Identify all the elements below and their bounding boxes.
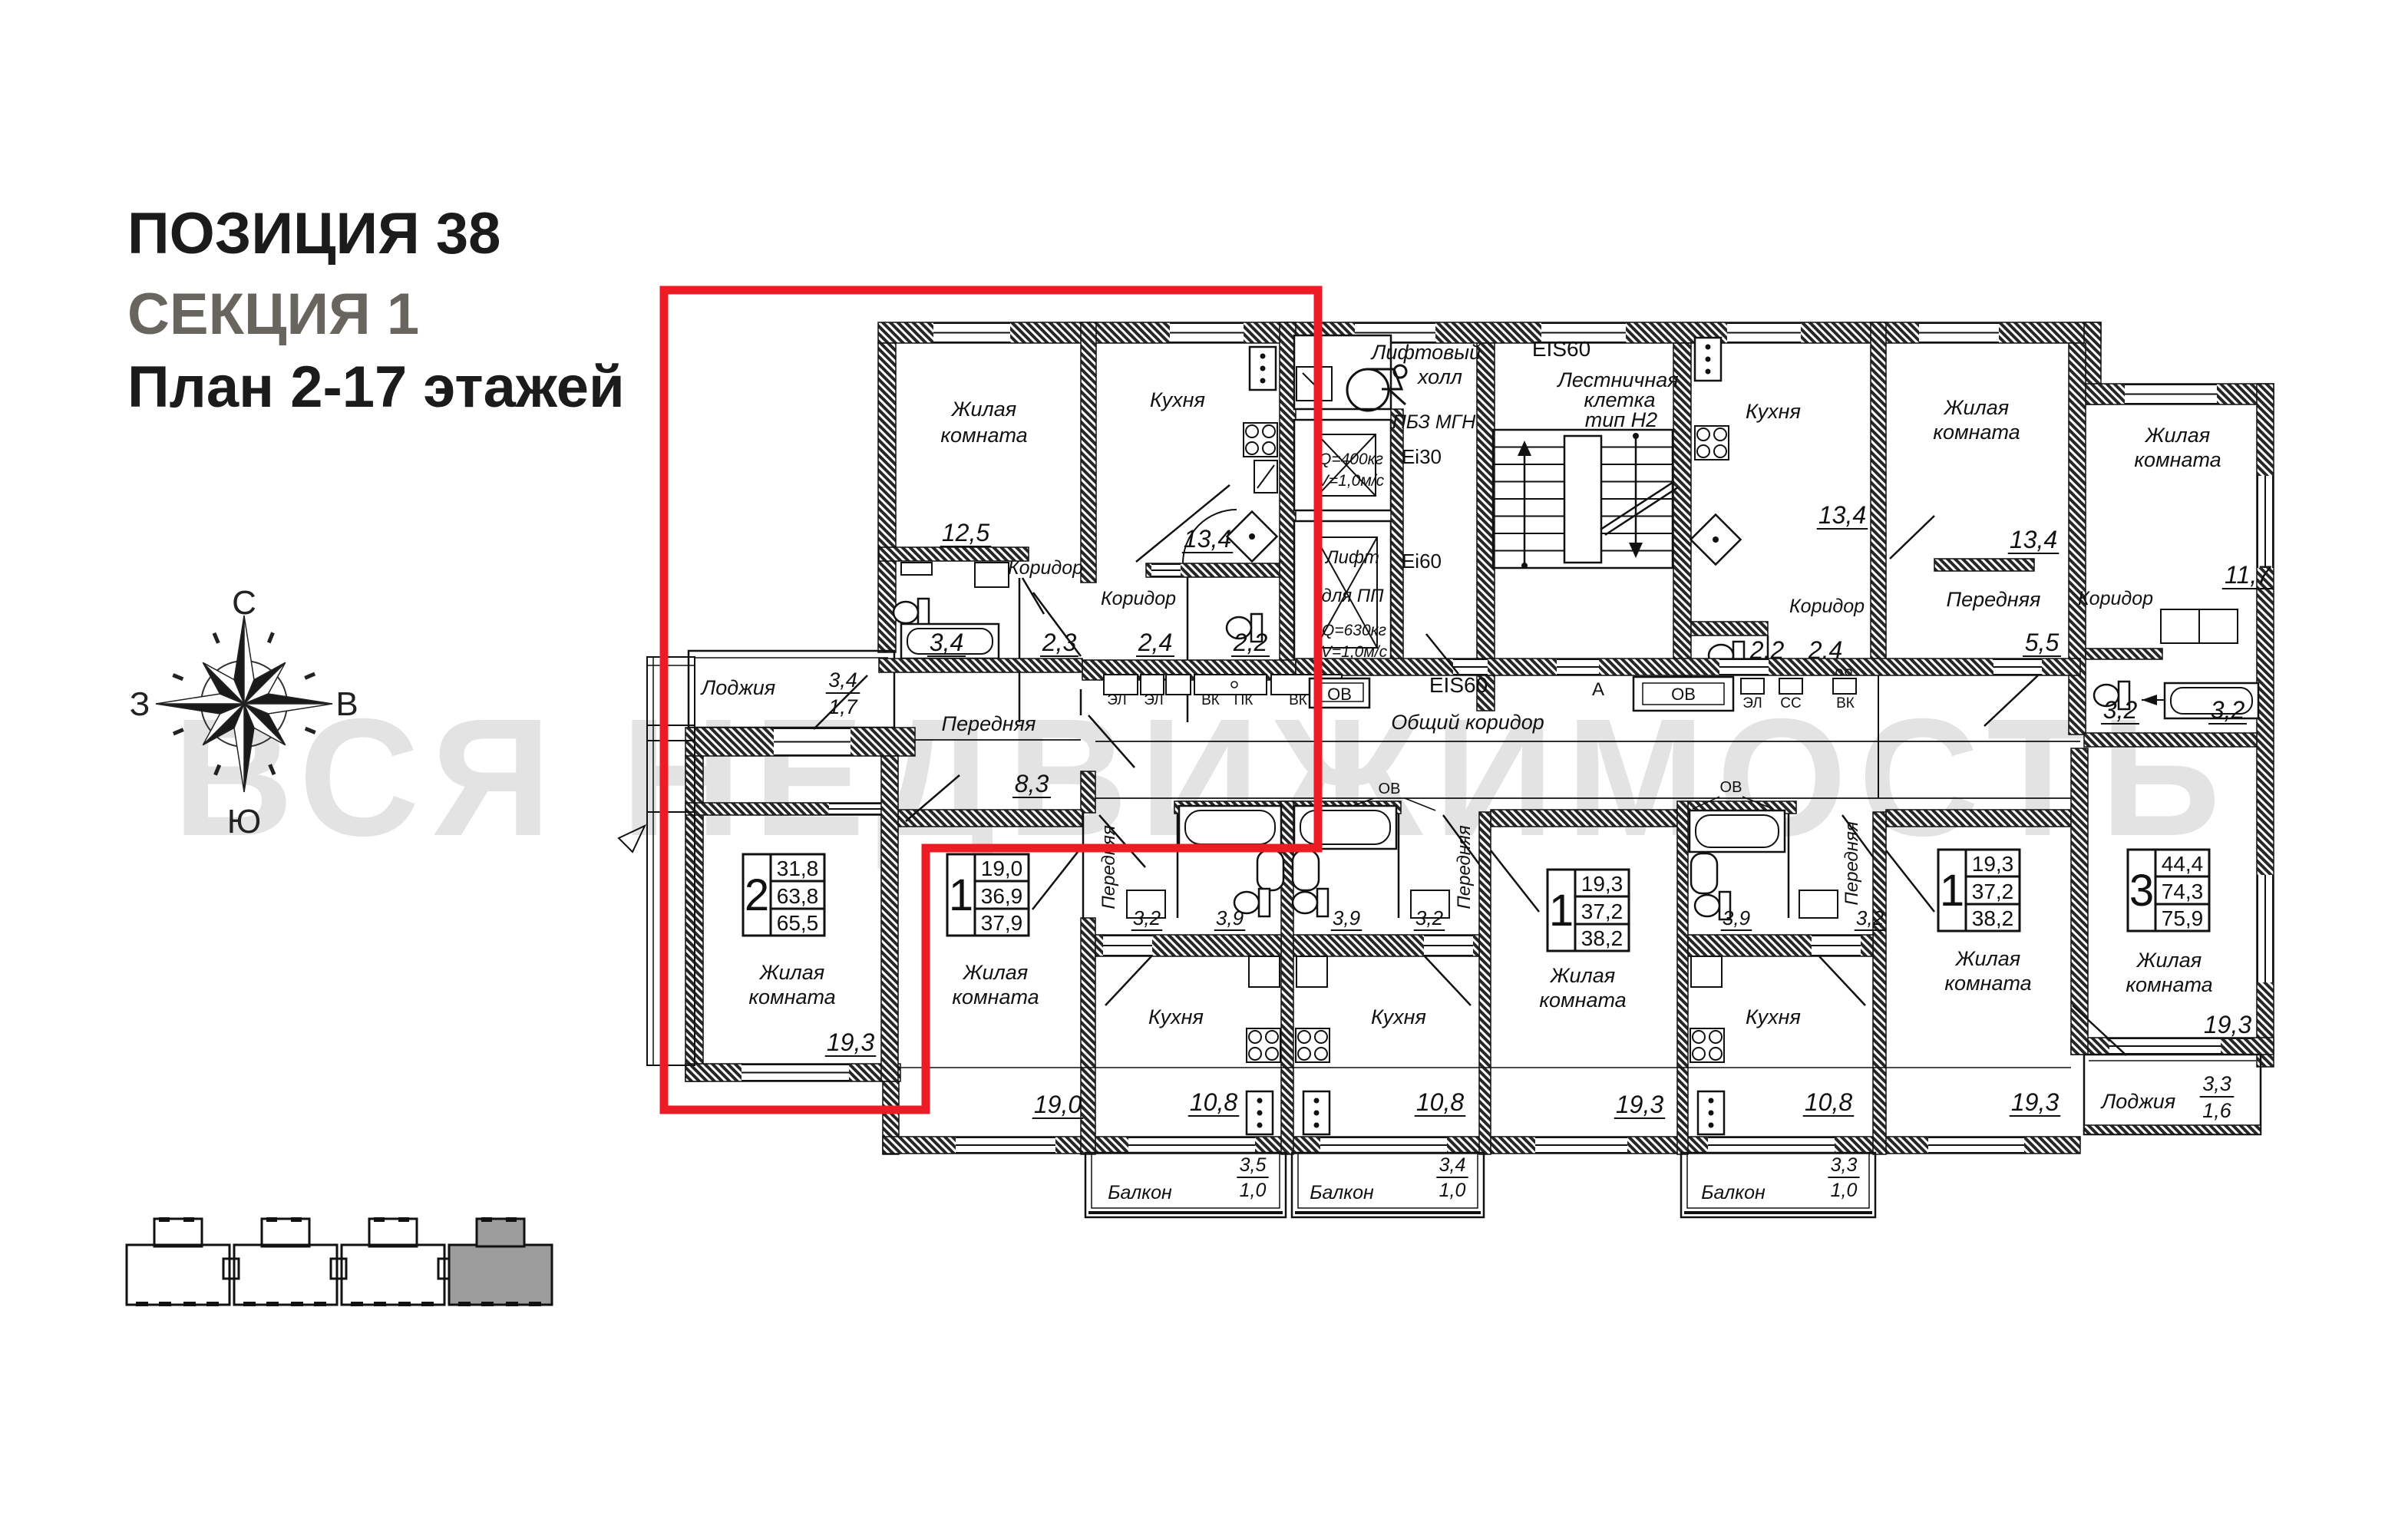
svg-text:11,7: 11,7 <box>2225 561 2271 589</box>
svg-text:Балкон: Балкон <box>1310 1182 1374 1203</box>
svg-text:10,8: 10,8 <box>1416 1088 1464 1116</box>
svg-text:37,2: 37,2 <box>1972 880 2014 903</box>
svg-text:V=1,0м/с: V=1,0м/с <box>1318 472 1385 490</box>
svg-text:Ю: Ю <box>227 803 261 840</box>
svg-text:3,2: 3,2 <box>1133 906 1161 929</box>
svg-text:19,3: 19,3 <box>827 1028 874 1056</box>
svg-text:3,2: 3,2 <box>1856 906 1884 929</box>
svg-text:Жилая: Жилая <box>1549 964 1615 987</box>
svg-text:Кухня: Кухня <box>1371 1005 1426 1028</box>
svg-text:31,8: 31,8 <box>777 857 819 880</box>
svg-text:19,3: 19,3 <box>1972 852 2014 876</box>
svg-text:СС: СС <box>1780 695 1801 711</box>
svg-text:З: З <box>130 685 150 723</box>
svg-text:Коридор: Коридор <box>1789 596 1865 617</box>
svg-text:ПК: ПК <box>1234 692 1254 708</box>
svg-text:1,0: 1,0 <box>1240 1180 1267 1201</box>
svg-text:ОВ: ОВ <box>1379 781 1401 797</box>
svg-text:Балкон: Балкон <box>1108 1182 1172 1203</box>
svg-text:10,8: 10,8 <box>1805 1088 1852 1116</box>
svg-text:ЭЛ: ЭЛ <box>1107 692 1127 708</box>
svg-text:СЕКЦИЯ 1: СЕКЦИЯ 1 <box>127 282 419 347</box>
svg-text:19,3: 19,3 <box>1616 1091 1663 1118</box>
svg-text:Жилая: Жилая <box>2144 424 2210 447</box>
svg-text:Коридор: Коридор <box>1008 557 1083 579</box>
svg-text:Жилая: Жилая <box>962 961 1028 984</box>
svg-text:75,9: 75,9 <box>2162 906 2204 930</box>
svg-text:1,0: 1,0 <box>1831 1180 1858 1201</box>
svg-text:37,9: 37,9 <box>981 911 1023 935</box>
svg-text:ОВ: ОВ <box>1671 685 1696 704</box>
svg-text:36,9: 36,9 <box>981 884 1023 908</box>
svg-text:Q=400кг: Q=400кг <box>1319 451 1383 468</box>
svg-text:3,5: 3,5 <box>1240 1154 1267 1176</box>
svg-text:63,8: 63,8 <box>777 884 819 908</box>
svg-text:1: 1 <box>1940 866 1964 916</box>
svg-text:Жилая: Жилая <box>2135 949 2202 972</box>
svg-text:Жилая: Жилая <box>1943 396 2009 419</box>
svg-text:38,2: 38,2 <box>1972 906 2014 930</box>
svg-text:1,0: 1,0 <box>1439 1180 1466 1201</box>
svg-text:19,3: 19,3 <box>2011 1088 2059 1116</box>
svg-text:ЭЛ: ЭЛ <box>1144 692 1164 708</box>
svg-text:комната: комната <box>748 985 835 1008</box>
svg-text:ВК: ВК <box>1201 692 1220 708</box>
svg-text:19,0: 19,0 <box>1034 1091 1082 1118</box>
svg-text:EIS60: EIS60 <box>1532 337 1590 361</box>
svg-text:комната: комната <box>1944 972 2031 995</box>
svg-text:3,2: 3,2 <box>1415 906 1444 929</box>
svg-text:Общий коридор: Общий коридор <box>1391 711 1544 734</box>
svg-text:Кухня: Кухня <box>1746 400 1801 423</box>
svg-text:Передняя: Передняя <box>1842 821 1862 905</box>
svg-text:3,4: 3,4 <box>828 668 857 692</box>
svg-text:ЭЛ: ЭЛ <box>1742 695 1762 711</box>
svg-text:тип Н2: тип Н2 <box>1585 408 1657 431</box>
svg-text:10,8: 10,8 <box>1190 1088 1237 1116</box>
svg-text:19,3: 19,3 <box>2204 1011 2251 1038</box>
svg-text:А: А <box>1592 679 1604 700</box>
svg-text:ОВ: ОВ <box>1327 685 1352 704</box>
svg-text:Балкон: Балкон <box>1701 1182 1766 1203</box>
svg-text:Коридор: Коридор <box>1101 588 1176 609</box>
svg-text:3,2: 3,2 <box>2211 696 2245 724</box>
svg-text:3,4: 3,4 <box>1439 1154 1466 1176</box>
svg-text:1,6: 1,6 <box>2202 1099 2232 1122</box>
svg-text:3,3: 3,3 <box>1831 1154 1858 1176</box>
svg-text:8,3: 8,3 <box>1015 770 1049 797</box>
svg-text:Жилая: Жилая <box>1954 947 2020 970</box>
svg-text:2: 2 <box>745 870 769 920</box>
svg-text:3,9: 3,9 <box>1333 906 1360 929</box>
svg-text:Кухня: Кухня <box>1148 1005 1204 1028</box>
svg-text:Жилая: Жилая <box>758 961 824 984</box>
svg-text:ВК: ВК <box>1289 692 1307 708</box>
svg-text:3,3: 3,3 <box>2202 1072 2231 1095</box>
svg-text:Лоджия: Лоджия <box>700 676 775 699</box>
svg-text:19,3: 19,3 <box>1581 872 1624 896</box>
svg-text:В: В <box>335 685 358 723</box>
svg-text:комната: комната <box>2126 973 2212 996</box>
svg-text:ПБЗ МГН: ПБЗ МГН <box>1392 411 1477 433</box>
svg-text:Q=630кг: Q=630кг <box>1322 622 1386 639</box>
svg-text:комната: комната <box>2134 448 2221 471</box>
svg-text:3: 3 <box>2129 866 2154 916</box>
svg-text:12,5: 12,5 <box>942 519 989 546</box>
svg-text:Кухня: Кухня <box>1746 1005 1801 1028</box>
svg-text:Лифтовый: Лифтовый <box>1370 341 1481 364</box>
svg-text:3,9: 3,9 <box>1723 906 1750 929</box>
svg-text:Жилая: Жилая <box>950 398 1016 421</box>
svg-text:Ei60: Ei60 <box>1402 550 1442 573</box>
svg-text:Лифт: Лифт <box>1324 547 1379 568</box>
svg-text:3,9: 3,9 <box>1216 906 1244 929</box>
svg-text:3,4: 3,4 <box>930 629 963 656</box>
svg-text:комната: комната <box>940 424 1027 447</box>
svg-text:1: 1 <box>1549 886 1574 936</box>
svg-text:13,4: 13,4 <box>2010 526 2057 553</box>
svg-text:холл: холл <box>1416 365 1462 388</box>
svg-text:19,0: 19,0 <box>981 857 1023 880</box>
svg-text:2,4: 2,4 <box>1138 629 1172 656</box>
svg-text:13,4: 13,4 <box>1184 525 1231 553</box>
svg-text:для ПП: для ПП <box>1321 586 1384 606</box>
svg-text:Передняя: Передняя <box>1098 825 1119 909</box>
svg-text:65,5: 65,5 <box>777 911 819 935</box>
svg-text:38,2: 38,2 <box>1581 926 1624 950</box>
svg-text:Передняя: Передняя <box>1947 588 2041 611</box>
svg-text:комната: комната <box>1539 989 1626 1012</box>
svg-text:2,2: 2,2 <box>1233 629 1268 656</box>
svg-text:1: 1 <box>949 870 973 920</box>
svg-text:ВК: ВК <box>1836 695 1855 711</box>
svg-text:План 2-17 этажей: План 2-17 этажей <box>127 355 625 420</box>
svg-text:Лоджия: Лоджия <box>2100 1090 2175 1113</box>
svg-text:Передняя: Передняя <box>1454 825 1475 909</box>
svg-text:Кухня: Кухня <box>1150 388 1205 411</box>
svg-text:Ei30: Ei30 <box>1402 445 1442 468</box>
svg-text:13,4: 13,4 <box>1818 501 1866 529</box>
svg-text:С: С <box>232 584 256 622</box>
svg-text:ПОЗИЦИЯ 38: ПОЗИЦИЯ 38 <box>127 201 500 266</box>
svg-text:Передняя: Передняя <box>942 712 1036 735</box>
svg-text:Коридор: Коридор <box>2078 588 2153 609</box>
svg-text:44,4: 44,4 <box>2162 852 2204 876</box>
svg-text:3,2: 3,2 <box>2103 696 2138 724</box>
svg-text:ОВ: ОВ <box>1720 779 1742 796</box>
svg-text:37,2: 37,2 <box>1581 900 1624 923</box>
svg-text:74,3: 74,3 <box>2162 880 2204 903</box>
svg-text:5,5: 5,5 <box>2025 629 2060 656</box>
svg-text:комната: комната <box>1933 421 2020 444</box>
svg-text:EIS60: EIS60 <box>1429 673 1488 697</box>
svg-text:комната: комната <box>952 985 1039 1008</box>
